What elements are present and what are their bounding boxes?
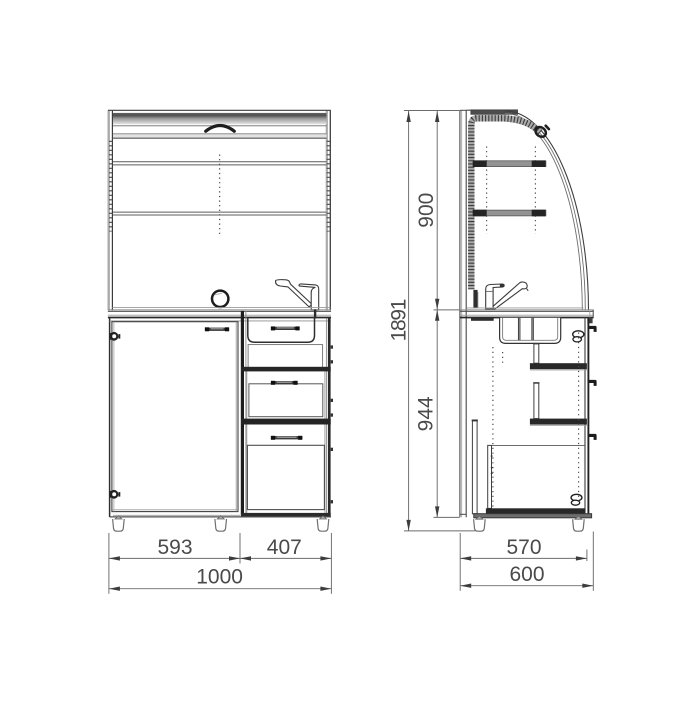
svg-text:600: 600 xyxy=(509,563,544,586)
svg-text:1000: 1000 xyxy=(196,566,243,589)
svg-text:407: 407 xyxy=(267,536,302,559)
svg-text:1891: 1891 xyxy=(387,299,410,341)
svg-text:944: 944 xyxy=(415,396,438,431)
svg-text:570: 570 xyxy=(506,536,541,559)
svg-text:593: 593 xyxy=(157,536,192,559)
svg-text:900: 900 xyxy=(415,193,438,228)
